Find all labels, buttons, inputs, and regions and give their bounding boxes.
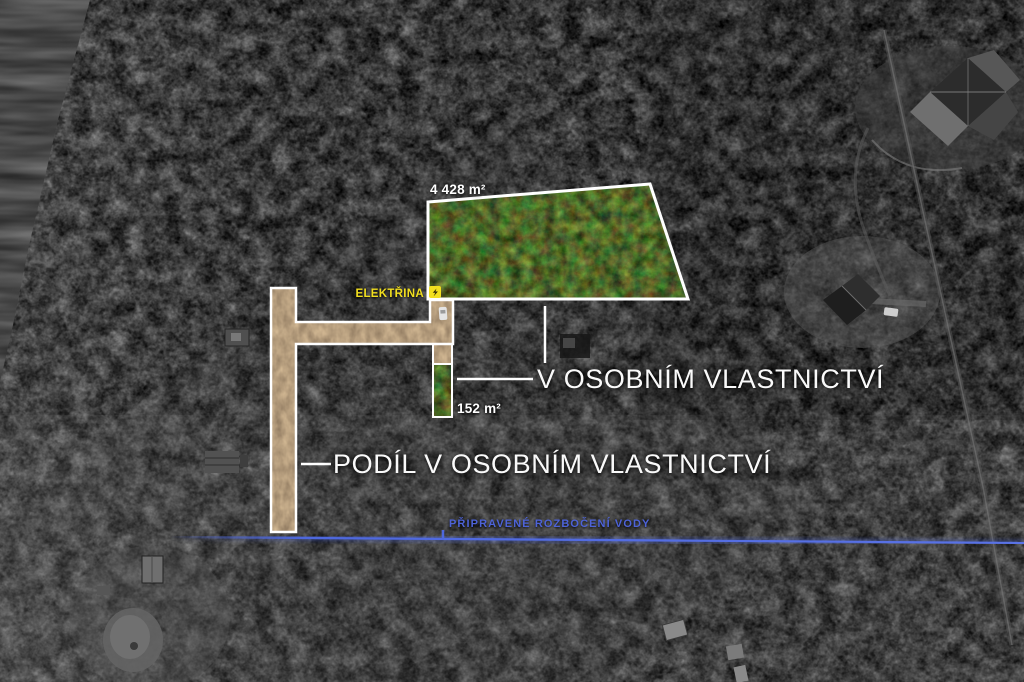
water-label: PŘIPRAVENÉ ROZBOČENÍ VODY xyxy=(449,519,651,530)
main-plot-area-label: 4 428 m² xyxy=(430,183,486,197)
ownership-label: V OSOBNÍM VLASTNICTVÍ xyxy=(537,366,884,393)
shed-center xyxy=(560,334,590,358)
listing-aerial-view: 4 428 m² ELEKTŘINA V OSOBNÍM VLASTNICTVÍ… xyxy=(0,0,1024,682)
aerial-photo xyxy=(0,0,1024,682)
house-right xyxy=(784,236,940,348)
car xyxy=(439,307,448,321)
electricity-meter-icon xyxy=(429,286,441,298)
road-share-label: PODÍL V OSOBNÍM VLASTNICTVÍ xyxy=(333,451,771,478)
electricity-label: ELEKTŘINA xyxy=(352,289,424,301)
small-plot-area-label: 152 m² xyxy=(457,402,501,416)
building-near-road xyxy=(225,329,249,346)
